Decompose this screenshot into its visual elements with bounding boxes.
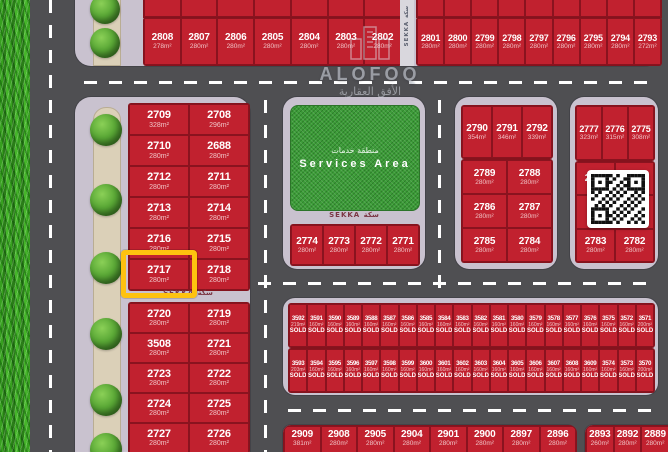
plot-area: 280m² (298, 247, 316, 254)
plot-cell: 3581160m²SOLD (490, 304, 508, 347)
plot-area: 280m² (476, 43, 494, 50)
plot-cell: 2708296m² (189, 104, 249, 135)
plot-cell: 3582160m²SOLD (472, 304, 490, 347)
qr-code (587, 170, 649, 228)
plot-grid: 2720280m²2719280m²3508280m²2721280m²2723… (128, 302, 250, 452)
sold-badge: SOLD (345, 328, 362, 335)
plot-area: 280m² (227, 43, 245, 50)
plot-number: 2791 (496, 123, 517, 134)
plot-cell: 2796280m² (553, 18, 580, 65)
plot-row: 2790354m²2791346m²2792339m² (461, 105, 553, 159)
plot-row: 2801280m²2800280m²2799280m²2798280m²2797… (416, 17, 662, 66)
plot-number: 2798 (502, 33, 521, 43)
plot-number: 2803 (335, 32, 356, 43)
block-services: منطقة خدمات Services Area SEKKA سكة 2774… (283, 97, 425, 269)
plot-cell: 3599160m²SOLD (399, 349, 417, 392)
sold-badge: SOLD (308, 328, 325, 335)
plot-number: 2709 (147, 109, 171, 121)
sold-badge: SOLD (363, 328, 380, 335)
plot-number: 2897 (511, 429, 532, 440)
plot-area: 280m² (149, 410, 169, 418)
plot-cell: 3583160m²SOLD (453, 304, 471, 347)
plot-cell: 3590160m²SOLD (326, 304, 344, 347)
sold-badge: SOLD (564, 328, 581, 335)
sold-badge: SOLD (509, 328, 526, 335)
plot-area: 280m² (475, 247, 493, 254)
plot-cell: 3578160m²SOLD (545, 304, 563, 347)
plot-number: 2713 (147, 202, 171, 214)
plot-cell: 2790354m² (462, 106, 492, 158)
plot-number: 2715 (207, 233, 231, 245)
plot-cell: 2805280m² (254, 18, 291, 65)
plot-area: 280m² (209, 320, 229, 328)
plot-area: 280m² (512, 440, 530, 447)
plot-cell-cut (417, 0, 444, 17)
plot-cell: 3508280m² (129, 333, 189, 363)
plot-number: 2708 (207, 109, 231, 121)
plot-cell: 3592219m²SOLD (289, 304, 307, 347)
plot-cell-cut (498, 0, 525, 17)
plot-cell: 2908280m² (321, 426, 358, 452)
plot-number: 3508 (147, 338, 171, 350)
sold-badge: SOLD (472, 373, 489, 380)
services-label-ar: منطقة خدمات (331, 146, 379, 155)
plot-cell: 3604160m²SOLD (490, 349, 508, 392)
plot-area: 280m² (190, 43, 208, 50)
plot-area: 315m² (606, 134, 624, 141)
plot-number: 2799 (475, 33, 494, 43)
plot-number: 2775 (631, 124, 650, 134)
plot-cell: 3580160m²SOLD (508, 304, 526, 347)
plot-area: 280m² (209, 440, 229, 448)
plot-cell: 3589160m²SOLD (344, 304, 362, 347)
road-label: SEKKA سكة (404, 6, 410, 46)
plot-area: 280m² (618, 440, 636, 447)
sold-badge: SOLD (637, 328, 654, 335)
plot-cell: 2772280m² (355, 225, 387, 265)
plot-cell: 2795280m² (580, 18, 607, 65)
plot-area: 280m² (149, 215, 169, 223)
plot-cell: 2806280m² (217, 18, 254, 65)
plot-cell-cut (444, 0, 471, 17)
plot-number: 2797 (529, 33, 548, 43)
road-dash-line (264, 100, 267, 452)
plot-area: 280m² (448, 43, 466, 50)
plot-number: 2714 (207, 202, 231, 214)
plot-area: 346m² (498, 134, 516, 141)
plot-cell: 3586160m²SOLD (399, 304, 417, 347)
sold-badge: SOLD (527, 373, 544, 380)
plot-cell-cut (328, 0, 365, 17)
plot-area: 280m² (584, 43, 602, 50)
plot-cell: 3606160m²SOLD (526, 349, 544, 392)
sold-badge: SOLD (582, 373, 599, 380)
plot-cell: 2901280m² (430, 426, 467, 452)
plot-number: 2808 (152, 32, 173, 43)
plot-cell: 3595160m²SOLD (326, 349, 344, 392)
block-sold: 3592219m²SOLD3591160m²SOLD3590160m²SOLD3… (283, 298, 658, 395)
sold-badge: SOLD (618, 373, 635, 380)
plot-number: 2794 (611, 33, 630, 43)
plot-cell: 2775308m² (628, 106, 654, 160)
plot-cell: 3573160m²SOLD (618, 349, 636, 392)
plot-cell: 2804280m² (291, 18, 328, 65)
plot-cell: 3605160m²SOLD (508, 349, 526, 392)
plot-number: 2909 (292, 429, 313, 440)
plot-cell: 3603160m²SOLD (472, 349, 490, 392)
plot-cell: 3601160m²SOLD (435, 349, 453, 392)
plot-cell: 2688280m² (189, 135, 249, 166)
plot-area: 280m² (209, 246, 229, 254)
plot-cell: 2722280m² (189, 363, 249, 393)
sold-badge: SOLD (491, 328, 508, 335)
plot-cell-cut (181, 0, 218, 17)
sold-badge: SOLD (290, 373, 307, 380)
plot-cell: 2721280m² (189, 333, 249, 363)
plot-cell: 2789280m² (462, 160, 507, 194)
plot-area: 280m² (149, 184, 169, 192)
sold-badge: SOLD (436, 373, 453, 380)
plot-cell-cut (553, 0, 580, 17)
plot-number: 2804 (298, 32, 319, 43)
grass-strip (0, 0, 30, 452)
tree-icon (90, 184, 122, 216)
plot-cell: 3574160m²SOLD (599, 349, 617, 392)
plot-number: 2795 (584, 33, 603, 43)
sold-badge: SOLD (381, 373, 398, 380)
plot-cell: 2791346m² (492, 106, 522, 158)
sold-badge: SOLD (326, 328, 343, 335)
plot-number: 2774 (296, 236, 317, 247)
plot-cell-cut (471, 0, 498, 17)
plot-number: 2802 (372, 32, 393, 43)
plot-number: 2904 (401, 429, 422, 440)
plot-cell: 2900280m² (467, 426, 504, 452)
plot-cell: 2905280m² (357, 426, 394, 452)
road-dash-line (438, 100, 441, 292)
plot-area: 308m² (632, 134, 650, 141)
plot-map: 2808278m²2807280m²2806280m²2805280m²2804… (0, 0, 668, 452)
sold-badge: SOLD (600, 328, 617, 335)
plot-cell: 2788280m² (507, 160, 552, 194)
plot-area: 280m² (557, 43, 575, 50)
plot-number: 2726 (207, 428, 231, 440)
plot-area: 280m² (549, 440, 567, 447)
sold-badge: SOLD (545, 373, 562, 380)
plot-number: 2727 (147, 428, 171, 440)
plot-area: 280m² (330, 440, 348, 447)
plot-cell: 2909381m² (284, 426, 321, 452)
block-right-middle: 2790354m²2791346m²2792339m² 2789280m²278… (455, 97, 557, 269)
sold-badge: SOLD (399, 328, 416, 335)
plot-area: 280m² (646, 440, 664, 447)
plot-number: 2722 (207, 368, 231, 380)
plot-area: 280m² (520, 213, 538, 220)
plot-area: 280m² (475, 213, 493, 220)
plot-area: 280m² (394, 247, 412, 254)
plot-row: 2909381m²2908280m²2905280m²2904280m²2901… (283, 425, 577, 452)
plot-area: 260m² (591, 440, 609, 447)
plot-number: 2801 (421, 33, 440, 43)
tree-icon (90, 252, 122, 284)
plot-cell: 3593203m²SOLD (289, 349, 307, 392)
plot-cell-cut (217, 0, 254, 17)
plot-cell: 2718280m² (189, 259, 249, 290)
plot-cell: 2726280m² (189, 423, 249, 452)
plot-area: 280m² (209, 410, 229, 418)
plot-cell: 2709328m² (129, 104, 189, 135)
block-bottom-right: 2893260m²2892280m²2889280m² (585, 425, 668, 452)
plot-area: 280m² (149, 350, 169, 358)
sekka-road-vertical: SEKKA سكة (400, 0, 414, 66)
plot-number: 2806 (225, 32, 246, 43)
plot-cell: 2711280m² (189, 166, 249, 197)
plot-cell: 3579160m²SOLD (526, 304, 544, 347)
sold-badge: SOLD (637, 373, 654, 380)
plot-number: 2721 (207, 338, 231, 350)
plot-cell: 2723280m² (129, 363, 189, 393)
plot-cell: 2714280m² (189, 197, 249, 228)
plot-number: 2710 (147, 140, 171, 152)
sold-badge: SOLD (326, 373, 343, 380)
sold-badge: SOLD (472, 328, 489, 335)
watermark-brand-ar: الأفق العقارية (295, 85, 445, 98)
plot-cell: 2893260m² (586, 426, 614, 452)
highlight-box-2717 (121, 250, 197, 298)
plot-number: 2777 (579, 124, 598, 134)
road-dash-line (49, 0, 52, 452)
plot-area: 280m² (476, 440, 494, 447)
plot-cell: 2889280m² (641, 426, 668, 452)
block-bottom-left: 2909381m²2908280m²2905280m²2904280m²2901… (283, 425, 575, 452)
plot-area: 272m² (638, 43, 656, 50)
plot-number: 2792 (526, 123, 547, 134)
plot-cell-cut (580, 0, 607, 17)
sold-badge: SOLD (381, 328, 398, 335)
plot-cell: 2712280m² (129, 166, 189, 197)
plot-cell: 2896280m² (540, 426, 577, 452)
plot-area: 280m² (209, 215, 229, 223)
plot-cell: 2727280m² (129, 423, 189, 452)
plot-area: 280m² (209, 277, 229, 285)
plot-cell: 2793272m² (634, 18, 661, 65)
plot-row-cut (143, 0, 402, 18)
plot-number: 2776 (605, 124, 624, 134)
sold-badge: SOLD (454, 373, 471, 380)
plot-number: 2716 (147, 233, 171, 245)
plot-cell: 2774280m² (291, 225, 323, 265)
plot-area: 280m² (209, 153, 229, 161)
sold-badge: SOLD (527, 328, 544, 335)
plot-number: 2724 (147, 398, 171, 410)
plot-cell-cut (254, 0, 291, 17)
plot-cell: 2725280m² (189, 393, 249, 423)
plot-number: 2772 (360, 236, 381, 247)
sold-badge: SOLD (418, 328, 435, 335)
plot-area: 280m² (475, 179, 493, 186)
road-dash-line (288, 409, 654, 412)
plot-cell: 3577160m²SOLD (563, 304, 581, 347)
plot-area: 280m² (149, 320, 169, 328)
plot-cell: 3608160m²SOLD (563, 349, 581, 392)
plot-number: 2718 (207, 264, 231, 276)
sold-badge: SOLD (618, 328, 635, 335)
road-dash-line (84, 81, 654, 84)
sold-badge: SOLD (436, 328, 453, 335)
plot-cell-cut (144, 0, 181, 17)
plot-cell: 3596160m²SOLD (344, 349, 362, 392)
plot-area: 280m² (625, 247, 643, 254)
plot-cell: 2773280m² (323, 225, 355, 265)
plot-area: 280m² (530, 43, 548, 50)
plot-cell: 2800280m² (444, 18, 471, 65)
plot-cell: 3570200m²SOLD (636, 349, 654, 392)
plot-cell-cut (525, 0, 552, 17)
plot-cell: 2794280m² (607, 18, 634, 65)
plot-number: 2719 (207, 308, 231, 320)
plot-cell: 2792339m² (522, 106, 552, 158)
plot-cell: 2771280m² (387, 225, 419, 265)
plot-cell: 2801280m² (417, 18, 444, 65)
plot-cell-cut (607, 0, 634, 17)
plot-cell: 2892280m² (614, 426, 642, 452)
plot-area: 339m² (528, 134, 546, 141)
plot-area: 296m² (209, 122, 229, 130)
plot-area: 280m² (149, 440, 169, 448)
plot-area: 280m² (520, 179, 538, 186)
plot-area: 280m² (330, 247, 348, 254)
sold-badge: SOLD (418, 373, 435, 380)
sold-badge: SOLD (363, 373, 380, 380)
plot-cell: 2897280m² (503, 426, 540, 452)
plot-grid: 2789280m²2788280m²2786280m²2787280m²2785… (461, 159, 553, 263)
plot-number: 2786 (474, 202, 495, 213)
plot-area: 280m² (263, 43, 281, 50)
plot-area: 280m² (439, 440, 457, 447)
sold-badge: SOLD (545, 328, 562, 335)
plot-number: 2784 (519, 236, 540, 247)
sold-row: 3593203m²SOLD3594160m²SOLD3595160m²SOLD3… (288, 348, 655, 393)
plot-cell: 2904280m² (394, 426, 431, 452)
sold-badge: SOLD (399, 373, 416, 380)
plot-number: 2790 (466, 123, 487, 134)
plot-area: 354m² (468, 134, 486, 141)
sold-badge: SOLD (345, 373, 362, 380)
plot-row: 2808278m²2807280m²2806280m²2805280m²2804… (143, 17, 402, 66)
plot-cell: 2719280m² (189, 303, 249, 333)
plot-number: 2785 (474, 236, 495, 247)
plot-row: 2777323m²2776315m²2775308m² (575, 105, 655, 161)
plot-cell: 2782280m² (615, 229, 654, 262)
plot-cell: 3607160m²SOLD (545, 349, 563, 392)
plot-number: 2783 (585, 236, 606, 247)
road-label: SEKKA سكة (290, 211, 418, 219)
road-dash-line (258, 282, 654, 285)
plot-number: 2789 (474, 168, 495, 179)
plot-cell: 3587160m²SOLD (380, 304, 398, 347)
plot-number: 2796 (556, 33, 575, 43)
plot-cell: 3575160m²SOLD (599, 304, 617, 347)
plot-cell-cut (291, 0, 328, 17)
plot-area: 280m² (149, 380, 169, 388)
plot-cell: 3602160m²SOLD (453, 349, 471, 392)
plot-cell: 3591160m²SOLD (307, 304, 325, 347)
plot-cell: 3588160m²SOLD (362, 304, 380, 347)
plot-number: 2908 (328, 429, 349, 440)
plot-cell: 2786280m² (462, 194, 507, 228)
plot-cell: 2720280m² (129, 303, 189, 333)
services-label-en: Services Area (299, 158, 410, 170)
plot-number: 2782 (624, 236, 645, 247)
sold-badge: SOLD (600, 373, 617, 380)
plot-cell: 2784280m² (507, 228, 552, 262)
plot-area: 280m² (520, 247, 538, 254)
plot-number: 2889 (644, 429, 665, 440)
plot-cell: 2807280m² (181, 18, 218, 65)
tree-icon (90, 114, 122, 146)
plot-area: 280m² (611, 43, 629, 50)
plot-cell: 2808278m² (144, 18, 181, 65)
plot-area: 280m² (373, 43, 391, 50)
plot-cell-cut (634, 0, 661, 17)
plot-number: 2892 (617, 429, 638, 440)
services-area: منطقة خدمات Services Area (290, 105, 420, 211)
plot-number: 2725 (207, 398, 231, 410)
plot-cell: 2803280m² (328, 18, 365, 65)
plot-cell: 2798280m² (498, 18, 525, 65)
plot-area: 280m² (209, 380, 229, 388)
plot-number: 2711 (207, 171, 230, 183)
plot-row-cut (416, 0, 662, 18)
sold-badge: SOLD (290, 328, 307, 335)
plot-number: 2720 (147, 308, 171, 320)
plot-area: 280m² (586, 247, 604, 254)
tree-icon (90, 28, 120, 58)
plot-number: 2805 (262, 32, 283, 43)
plot-number: 2688 (207, 140, 231, 152)
sold-badge: SOLD (491, 373, 508, 380)
plot-area: 323m² (580, 134, 598, 141)
plot-cell: 3600160m²SOLD (417, 349, 435, 392)
plot-area: 381m² (293, 440, 311, 447)
sold-badge: SOLD (582, 328, 599, 335)
plot-cell: 2783280m² (576, 229, 615, 262)
plot-cell: 3597160m²SOLD (362, 349, 380, 392)
tree-icon (90, 384, 122, 416)
plot-area: 280m² (149, 153, 169, 161)
plot-row: 2893260m²2892280m²2889280m² (585, 425, 668, 452)
plot-cell: 3585160m²SOLD (417, 304, 435, 347)
plot-area: 280m² (366, 440, 384, 447)
plot-number: 2901 (438, 429, 459, 440)
plot-cell: 2710280m² (129, 135, 189, 166)
plot-area: 280m² (209, 350, 229, 358)
plot-area: 280m² (421, 43, 439, 50)
plot-cell: 2802280m² (364, 18, 401, 65)
plot-cell: 3609160m²SOLD (581, 349, 599, 392)
plot-cell: 3572160m²SOLD (618, 304, 636, 347)
plot-cell: 3594160m²SOLD (307, 349, 325, 392)
plot-number: 2905 (365, 429, 386, 440)
plot-number: 2712 (147, 171, 171, 183)
plot-number: 2771 (392, 236, 413, 247)
plot-area: 280m² (503, 43, 521, 50)
plot-cell: 2797280m² (525, 18, 552, 65)
plot-cell: 2799280m² (471, 18, 498, 65)
plot-cell: 3584160m²SOLD (435, 304, 453, 347)
plot-number: 2788 (519, 168, 540, 179)
sold-row: 3592219m²SOLD3591160m²SOLD3590160m²SOLD3… (288, 303, 655, 348)
